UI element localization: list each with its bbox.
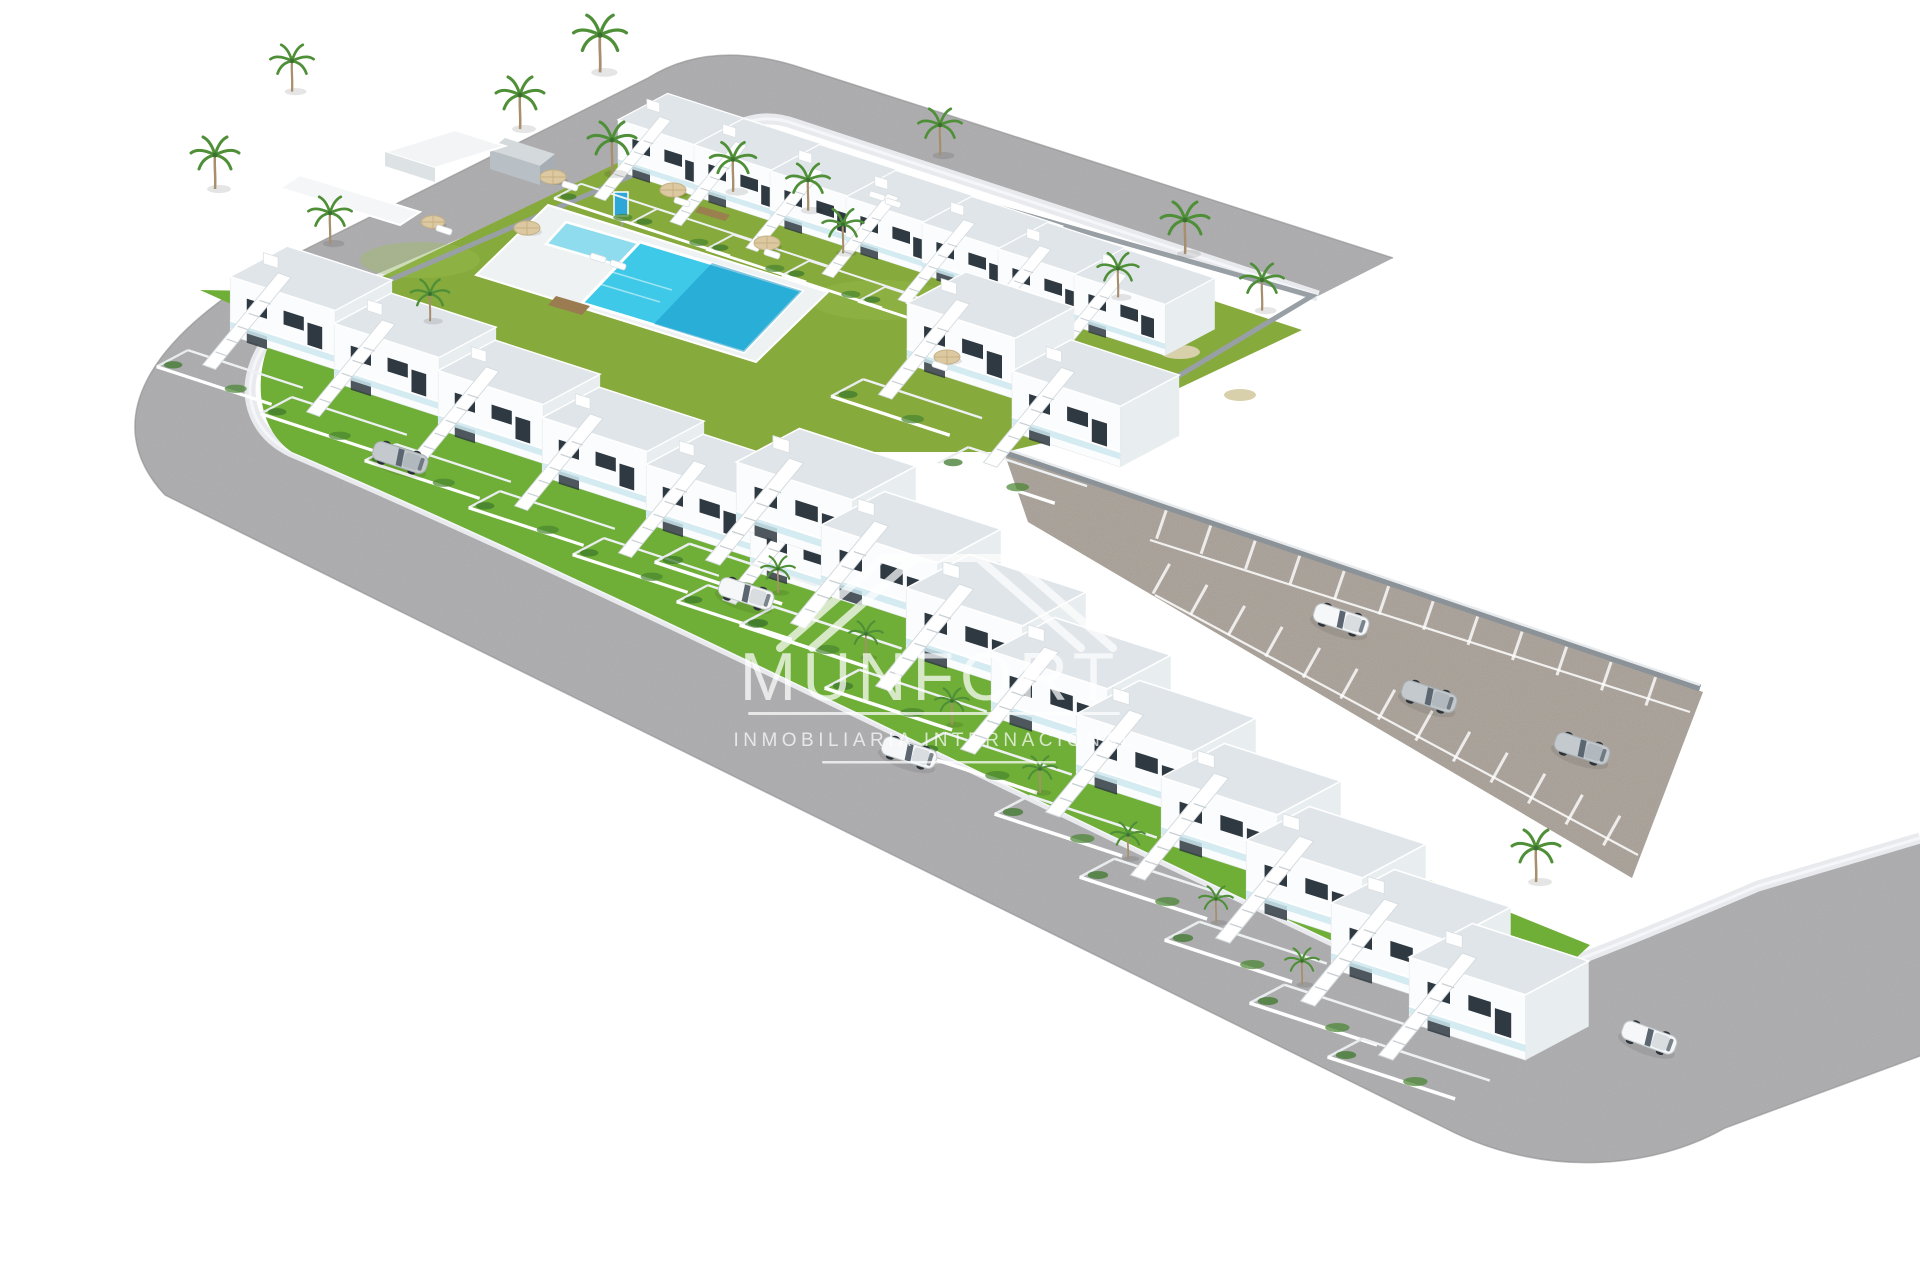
gravel-patch: [1224, 389, 1256, 401]
watermark-brand: MUNFORT: [740, 639, 1121, 715]
render-image: MUNFORT INMOBILIARIA INTERNACIONAL: [0, 0, 1920, 1280]
palm-instance: [496, 77, 544, 133]
palm-instance: [1512, 830, 1560, 886]
palm-instance: [270, 45, 313, 95]
palm-instance: [191, 137, 239, 193]
white-fence: [280, 175, 420, 225]
watermark-tagline: INMOBILIARIA INTERNACIONAL: [733, 730, 1136, 751]
watermark-divider-top: [748, 712, 1120, 715]
watermark-divider-bottom: [822, 761, 1056, 764]
palm-instance: [574, 15, 627, 77]
